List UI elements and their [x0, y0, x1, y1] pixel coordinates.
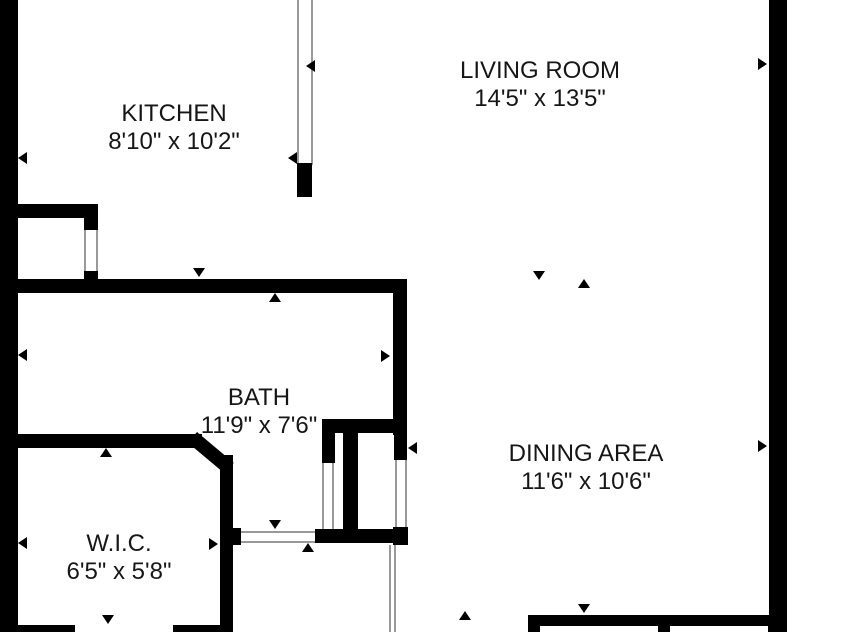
bath-right-opening-line [395, 460, 397, 527]
bath-inner-center-wall [343, 433, 358, 533]
room-name: LIVING ROOM [460, 57, 620, 85]
alcove-door-stub-bottom [84, 271, 98, 279]
room-name: KITCHEN [108, 100, 240, 128]
room-dimensions: 6'5" x 5'8" [67, 558, 172, 586]
arrow-marker-icon [578, 604, 590, 613]
room-name: DINING AREA [509, 440, 664, 468]
bottom-wall-window-post [528, 626, 540, 632]
bath-inner-opening-line [332, 463, 334, 529]
exterior-wall-left [0, 0, 18, 632]
room-name: W.I.C. [67, 530, 172, 558]
arrow-marker-icon [408, 442, 417, 454]
bottom-wall-window-post [658, 626, 670, 632]
kitchen-divider-wall-stub [297, 163, 312, 197]
room-dimensions: 8'10" x 10'2" [108, 128, 240, 156]
arrow-marker-icon [459, 611, 471, 620]
bath-door-stub [228, 528, 241, 545]
arrow-marker-icon [533, 271, 545, 280]
bath-right-wall-stub-top [394, 435, 407, 460]
room-dimensions: 11'9" x 7'6" [201, 412, 318, 440]
bath-door-opening-line [241, 531, 315, 533]
arrow-marker-icon [100, 448, 112, 457]
bath-inner-left-stub [322, 433, 335, 463]
bath-right-wall [393, 293, 407, 435]
arrow-marker-icon [758, 58, 767, 70]
bottom-wall-window-post [768, 626, 787, 632]
room-dimensions: 14'5" x 13'5" [460, 85, 620, 113]
arrow-marker-icon [269, 293, 281, 302]
kitchen-divider-opening-line [297, 0, 299, 165]
arrow-marker-icon [18, 537, 27, 549]
main-horizontal-wall [17, 279, 407, 293]
room-label-kitchen: KITCHEN 8'10" x 10'2" [108, 100, 240, 156]
room-dimensions: 11'6" x 10'6" [509, 468, 664, 496]
arrow-marker-icon [18, 152, 27, 164]
arrow-marker-icon [102, 615, 114, 624]
alcove-door-opening-line [84, 230, 86, 272]
bottom-wall-wic-left [0, 625, 75, 632]
bath-inner-top-wall [322, 419, 407, 433]
arrow-marker-icon [288, 152, 297, 164]
bath-right-wall-stub-bottom [393, 527, 408, 545]
bottom-wall-wic-right [173, 625, 233, 632]
bath-right-opening-line [405, 460, 407, 527]
arrow-marker-icon [18, 349, 27, 361]
alcove-door-opening-line [96, 230, 98, 272]
exterior-wall-right [769, 0, 787, 632]
arrow-marker-icon [269, 520, 281, 529]
arrow-marker-icon [381, 350, 390, 362]
room-name: BATH [201, 384, 318, 412]
room-label-living-room: LIVING ROOM 14'5" x 13'5" [460, 57, 620, 113]
arrow-marker-icon [578, 279, 590, 288]
hall-opening-line [389, 545, 391, 632]
hall-opening-line [394, 545, 396, 632]
bath-inner-bottom-wall [315, 529, 395, 543]
bath-inner-opening-line [322, 463, 324, 529]
arrow-marker-icon [209, 538, 218, 550]
arrow-marker-icon [306, 60, 315, 72]
arrow-marker-icon [193, 268, 205, 277]
bottom-wall-dining [528, 615, 787, 626]
arrow-marker-icon [302, 543, 314, 552]
arrow-marker-icon [758, 440, 767, 452]
floor-plan: KITCHEN 8'10" x 10'2" LIVING ROOM 14'5" … [0, 0, 843, 632]
alcove-door-stub-top [84, 216, 98, 230]
kitchen-divider-opening-line [311, 0, 313, 165]
wic-top-wall [17, 434, 202, 448]
room-label-bath: BATH 11'9" x 7'6" [201, 384, 318, 440]
room-label-wic: W.I.C. 6'5" x 5'8" [67, 530, 172, 586]
room-label-dining-area: DINING AREA 11'6" x 10'6" [509, 440, 664, 496]
